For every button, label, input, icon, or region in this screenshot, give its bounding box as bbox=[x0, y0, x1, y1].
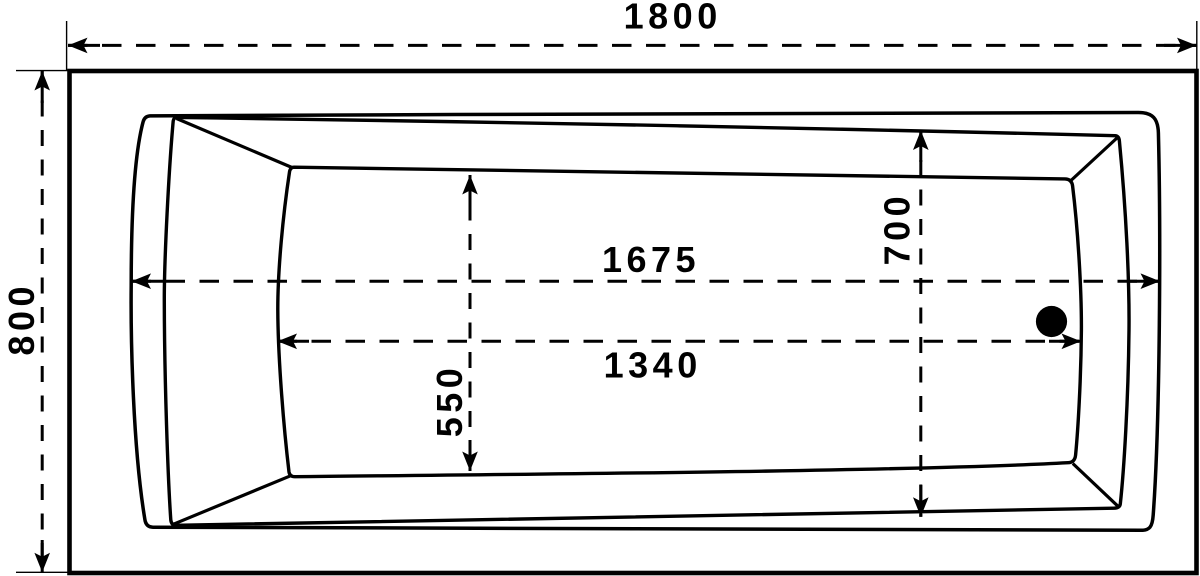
svg-text:1675: 1675 bbox=[602, 239, 700, 280]
svg-text:1340: 1340 bbox=[604, 345, 702, 386]
svg-text:800: 800 bbox=[1, 282, 42, 356]
svg-text:1800: 1800 bbox=[624, 0, 722, 37]
svg-text:550: 550 bbox=[429, 364, 470, 438]
svg-text:700: 700 bbox=[877, 192, 918, 266]
